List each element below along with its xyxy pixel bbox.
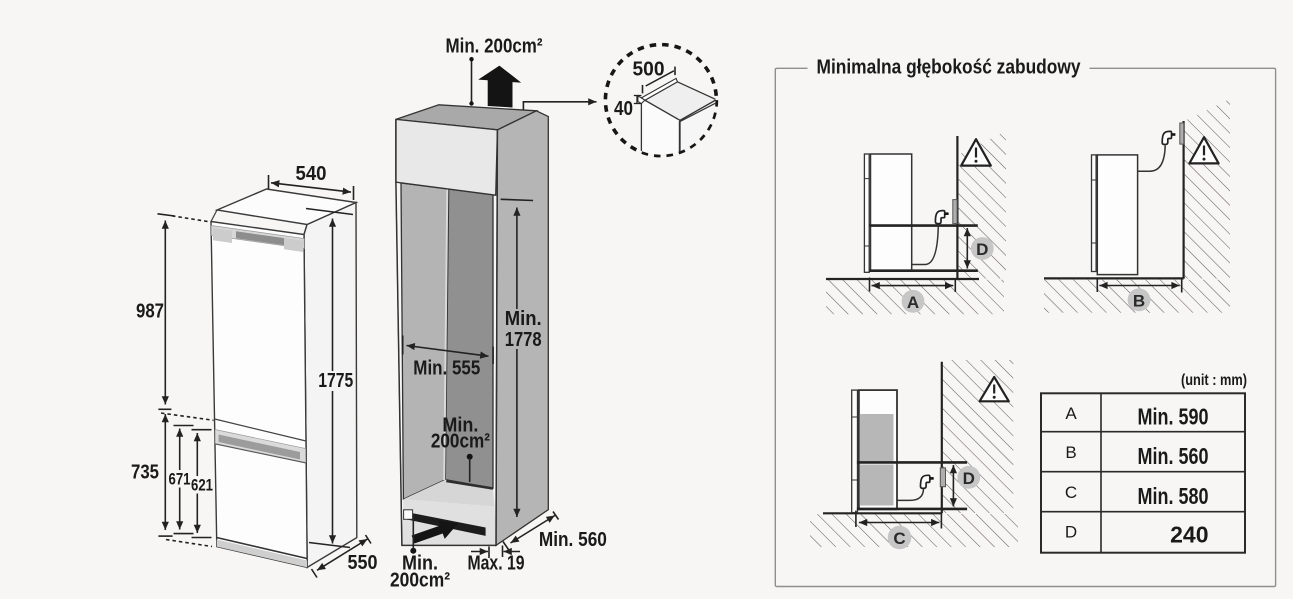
svg-text:240: 240	[1170, 521, 1208, 547]
svg-text:987: 987	[136, 301, 164, 323]
svg-text:D: D	[1065, 523, 1077, 542]
svg-text:B: B	[1133, 291, 1145, 310]
svg-text:Minimalna głębokość zabudowy: Minimalna głębokość zabudowy	[817, 56, 1082, 78]
svg-text:Min. 590: Min. 590	[1138, 403, 1209, 429]
svg-text:621: 621	[191, 476, 213, 495]
svg-text:500: 500	[633, 59, 665, 81]
svg-text:Min. 580: Min. 580	[1138, 483, 1209, 509]
svg-text:Min. 560: Min. 560	[1138, 443, 1209, 469]
svg-text:Min.: Min.	[505, 308, 542, 330]
svg-text:200cm²: 200cm²	[390, 570, 450, 592]
svg-text:Min. 555: Min. 555	[413, 358, 480, 380]
svg-text:1775: 1775	[318, 370, 353, 392]
svg-text:D: D	[976, 240, 988, 259]
svg-text:Max. 19: Max. 19	[468, 552, 525, 574]
svg-text:Min. 560: Min. 560	[539, 529, 607, 551]
svg-text:540: 540	[296, 163, 327, 185]
svg-text:A: A	[907, 293, 919, 312]
svg-text:1778: 1778	[505, 329, 542, 351]
svg-text:Min. 200cm²: Min. 200cm²	[446, 36, 543, 58]
svg-text:C: C	[893, 529, 905, 548]
svg-text:200cm²: 200cm²	[431, 430, 490, 452]
svg-text:D: D	[963, 469, 975, 488]
svg-text:(unit : mm): (unit : mm)	[1181, 372, 1247, 389]
svg-text:735: 735	[131, 462, 159, 484]
svg-text:550: 550	[348, 552, 378, 574]
svg-text:40: 40	[614, 98, 633, 120]
svg-text:B: B	[1065, 443, 1076, 462]
svg-text:C: C	[1065, 483, 1077, 502]
svg-text:671: 671	[169, 469, 191, 488]
svg-text:A: A	[1065, 404, 1077, 423]
